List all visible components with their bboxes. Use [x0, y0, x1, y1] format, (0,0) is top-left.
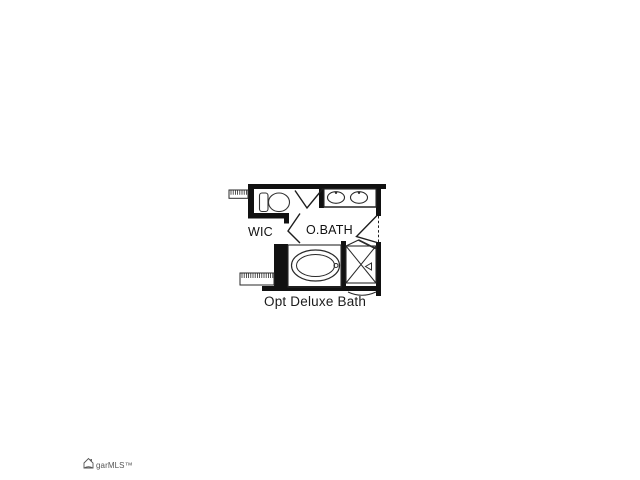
closet-shelf-bottom	[240, 273, 274, 285]
room-label-obath: O.BATH	[306, 224, 353, 237]
door-swing-toilet-room	[295, 189, 323, 209]
wall-right-upper	[376, 184, 381, 216]
wall-toilet-room-left	[248, 184, 254, 215]
vanity-counter	[324, 189, 376, 207]
showerhead-icon	[366, 263, 372, 270]
wall-top	[248, 184, 386, 189]
plan-caption: Opt Deluxe Bath	[264, 295, 366, 309]
mls-watermark-text: garMLS™	[96, 461, 133, 470]
floor-plan	[0, 0, 640, 480]
wall-toilet-room-bottom	[248, 213, 289, 219]
closet-shelf-top	[229, 190, 248, 198]
door-swing-entry	[357, 216, 378, 243]
faucet-right	[358, 192, 360, 194]
toilet-tank	[260, 193, 269, 212]
door-jamb-stub	[284, 219, 289, 224]
wall-wic-column	[274, 244, 288, 290]
toilet-fixture	[260, 193, 290, 212]
room-label-wic: WIC	[248, 226, 273, 239]
house-logo-icon	[82, 457, 95, 470]
wall-tub-shower	[341, 241, 346, 288]
door-swing-wic	[288, 214, 300, 244]
faucet-left	[335, 192, 337, 194]
toilet-bowl	[269, 193, 290, 212]
floor-plan-image: WIC O.BATH Opt Deluxe Bath garMLS™	[0, 0, 640, 480]
mls-watermark: garMLS™	[82, 457, 133, 470]
tub-inner-rim	[297, 255, 335, 277]
bathtub	[288, 245, 341, 287]
